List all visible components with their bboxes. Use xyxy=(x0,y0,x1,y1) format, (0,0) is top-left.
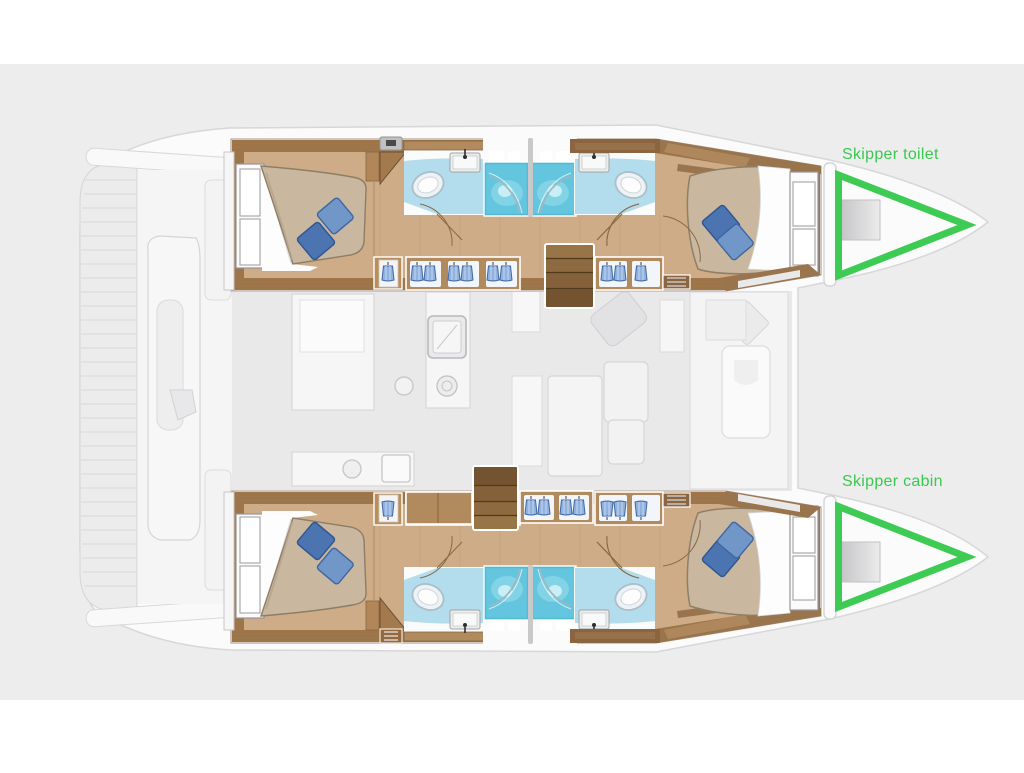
svg-text:Skipper cabin: Skipper cabin xyxy=(842,473,943,490)
svg-text:Skipper toilet: Skipper toilet xyxy=(842,146,939,163)
